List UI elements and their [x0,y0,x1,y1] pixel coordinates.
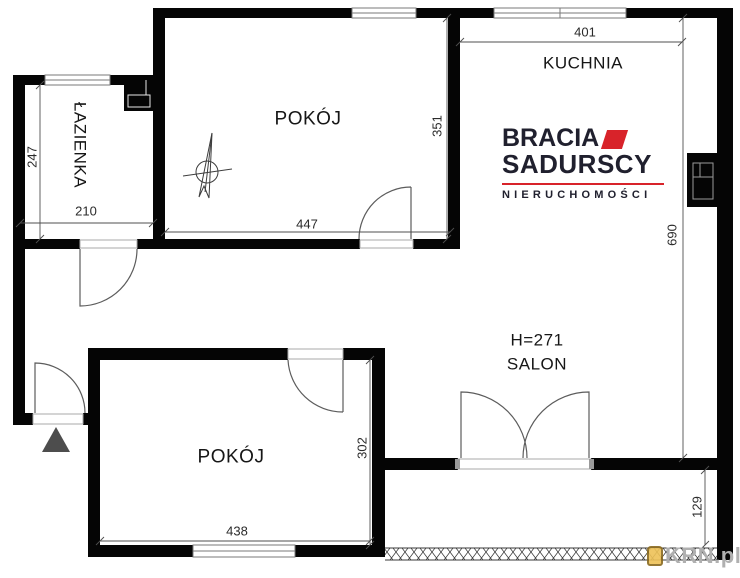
windows-layer [33,8,626,557]
french-door-left-arc [461,392,527,458]
agency-logo: BRACIA SADURSCY NIERUCHOMOŚCI [502,125,674,201]
floorplan-drawing [0,0,740,578]
kitchen-label: KUCHNIA [543,55,623,72]
dim-bathroom-width: 210 [75,205,97,218]
north-arrow-icon [183,133,232,198]
dim-balcony-depth: 129 [691,496,704,518]
logo-line3: NIERUCHOMOŚCI [502,189,674,201]
room-bottom-door-arc [288,360,343,412]
red-parallelogram-icon [601,130,628,149]
dim-room-top-height: 351 [431,115,444,137]
dim-right-side-height: 690 [666,224,679,246]
krn-watermark-text: KRN.pl [665,543,740,569]
room-top-door-arc [359,187,411,239]
logo-line1: BRACIA [502,125,599,151]
logo-line2: SADURSCY [502,151,652,178]
bathroom-label: ŁAZIENKA [72,102,89,188]
floor-plan: ŁAZIENKA POKÓJ KUCHNIA H=271 SALON POKÓJ… [0,0,740,578]
french-door-right-arc [523,392,589,458]
logo-divider [502,183,664,185]
walls-layer [13,8,733,560]
dim-room-top-width: 447 [296,218,318,231]
bathroom-door-arc [80,249,137,306]
dim-room-bottom-height: 302 [356,437,369,459]
salon-label: SALON [507,356,567,373]
dim-bathroom-height: 247 [26,146,39,168]
krn-icon [647,546,663,566]
salon-ceiling-height-label: H=271 [510,332,563,349]
entrance-triangle-icon [42,427,70,452]
dim-room-bottom-width: 438 [226,525,248,538]
entrance-door-arc [35,363,85,413]
bathroom-shaft-symbol [124,78,154,111]
room-top-label: POKÓJ [275,110,342,129]
krn-watermark: KRN.pl [647,543,740,569]
room-bottom-label: POKÓJ [198,448,265,467]
dim-kitchen-width: 401 [574,26,596,39]
kitchen-shaft-symbol [687,153,717,207]
